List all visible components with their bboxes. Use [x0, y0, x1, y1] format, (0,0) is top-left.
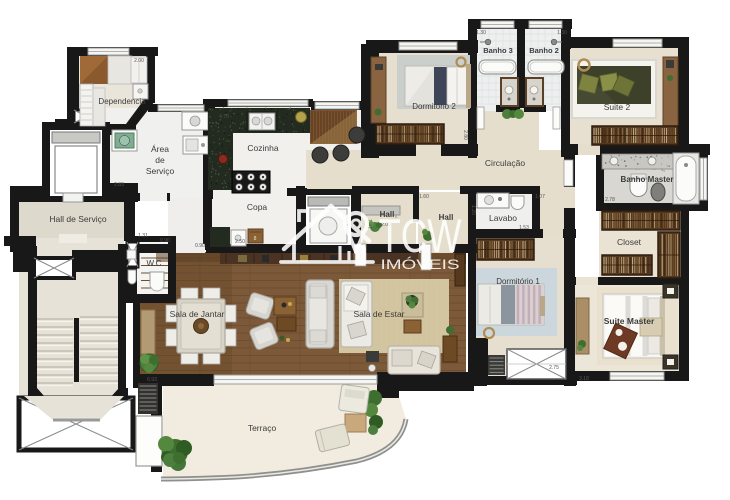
- svg-text:Terraço: Terraço: [248, 423, 277, 433]
- svg-text:1.30: 1.30: [557, 30, 567, 36]
- svg-text:0.90: 0.90: [160, 238, 170, 244]
- svg-text:Closet: Closet: [617, 237, 642, 247]
- svg-text:Serviço: Serviço: [146, 166, 175, 176]
- svg-text:1.30: 1.30: [476, 30, 486, 36]
- svg-text:1.07: 1.07: [535, 194, 545, 200]
- svg-text:2.00: 2.00: [134, 58, 144, 64]
- svg-text:Circulação: Circulação: [485, 158, 525, 168]
- svg-text:8: 8: [254, 236, 257, 242]
- svg-text:Dependencia: Dependencia: [98, 97, 146, 106]
- svg-text:de: de: [155, 155, 165, 165]
- svg-text:Sala de Estar: Sala de Estar: [353, 309, 404, 319]
- svg-text:Banho 3: Banho 3: [483, 46, 513, 55]
- svg-text:Suite Master: Suite Master: [604, 316, 655, 326]
- svg-text:Lavabo: Lavabo: [489, 213, 517, 223]
- svg-text:TCW: TCW: [379, 209, 462, 262]
- svg-text:4.70: 4.70: [219, 114, 229, 120]
- svg-text:W.C: W.C: [146, 259, 161, 268]
- svg-text:Área: Área: [151, 144, 169, 154]
- svg-text:2.83: 2.83: [114, 182, 124, 188]
- svg-text:1.53: 1.53: [519, 225, 529, 231]
- svg-text:2.50: 2.50: [235, 239, 245, 245]
- svg-text:Banho Master: Banho Master: [621, 175, 674, 184]
- svg-text:Dormitório 2: Dormitório 2: [412, 102, 456, 111]
- svg-text:Dormitório 1: Dormitório 1: [496, 277, 540, 286]
- svg-text:0.90: 0.90: [195, 243, 205, 249]
- svg-text:IMÓVEIS: IMÓVEIS: [381, 257, 460, 272]
- svg-text:6.93: 6.93: [147, 377, 157, 383]
- svg-text:2.78: 2.78: [605, 197, 615, 203]
- svg-text:1.20: 1.20: [470, 205, 476, 215]
- svg-text:1.60: 1.60: [419, 194, 429, 200]
- svg-text:Suite 2: Suite 2: [604, 102, 631, 112]
- svg-text:1.31: 1.31: [138, 233, 148, 239]
- svg-text:2.80: 2.80: [462, 130, 468, 140]
- svg-text:Copa: Copa: [247, 202, 268, 212]
- svg-text:3.18: 3.18: [579, 376, 589, 382]
- svg-text:Banho 2: Banho 2: [529, 46, 559, 55]
- svg-text:2.75: 2.75: [549, 365, 559, 371]
- svg-text:Cozinha: Cozinha: [247, 143, 278, 153]
- svg-text:Hall de Serviço: Hall de Serviço: [49, 214, 106, 224]
- svg-text:Sala de Jantar: Sala de Jantar: [170, 309, 225, 319]
